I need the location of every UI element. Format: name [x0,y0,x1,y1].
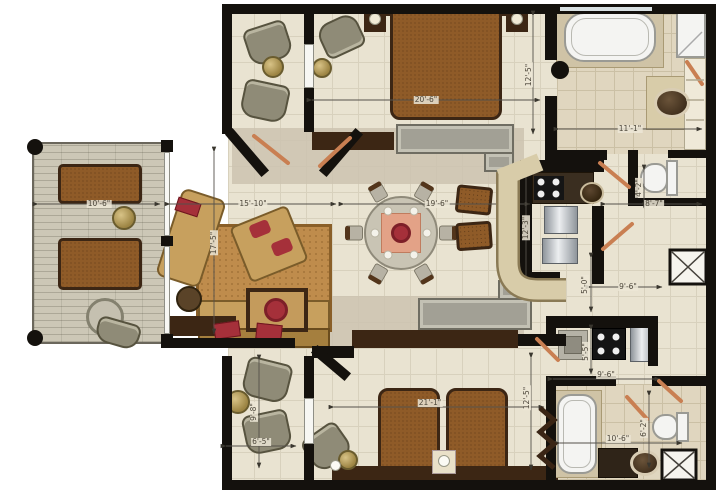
dim-label: 15'-10" [238,200,267,208]
dim-label: 20'-6" [414,96,439,104]
dim-label: 21'-1" [418,399,443,407]
angled-walls [232,135,356,374]
dim-label: 5'-0" [581,275,589,295]
dim-label: 6'-2" [640,418,648,438]
floor-plan: 20'-6" 12'-5" 11'-1" 10'-6" 15'-10" 19'-… [0,0,720,494]
dim-label: 12'-3" [522,216,530,241]
dimension-lines [38,16,702,470]
dim-label: 6'-5" [251,438,271,446]
dim-label: 11'-1" [618,125,643,133]
dim-label: 19'-6" [425,200,450,208]
dim-label: 9'-8" [250,402,258,422]
dim-label: 12'-5" [525,63,533,88]
shower-door [678,32,702,56]
shaft-box [670,250,706,284]
dim-label: 12'-5" [523,386,531,411]
door-swings [254,62,702,419]
bar-counter [500,162,566,290]
shaft-box [662,450,696,480]
luggage-rack [540,408,554,468]
dim-label: 5'-5" [582,342,590,362]
dim-label: 9'-6" [596,371,616,379]
closet-shelves [686,80,704,120]
dim-label: 8'-7" [644,200,664,208]
annotation-overlay [0,0,720,494]
dim-label: 9'-6" [618,283,638,291]
dim-label: 10'-6" [87,200,112,208]
dim-label: 17'-5" [210,231,218,256]
dim-label: 4'-2" [635,178,643,198]
dim-label: 10'-6" [606,435,631,443]
